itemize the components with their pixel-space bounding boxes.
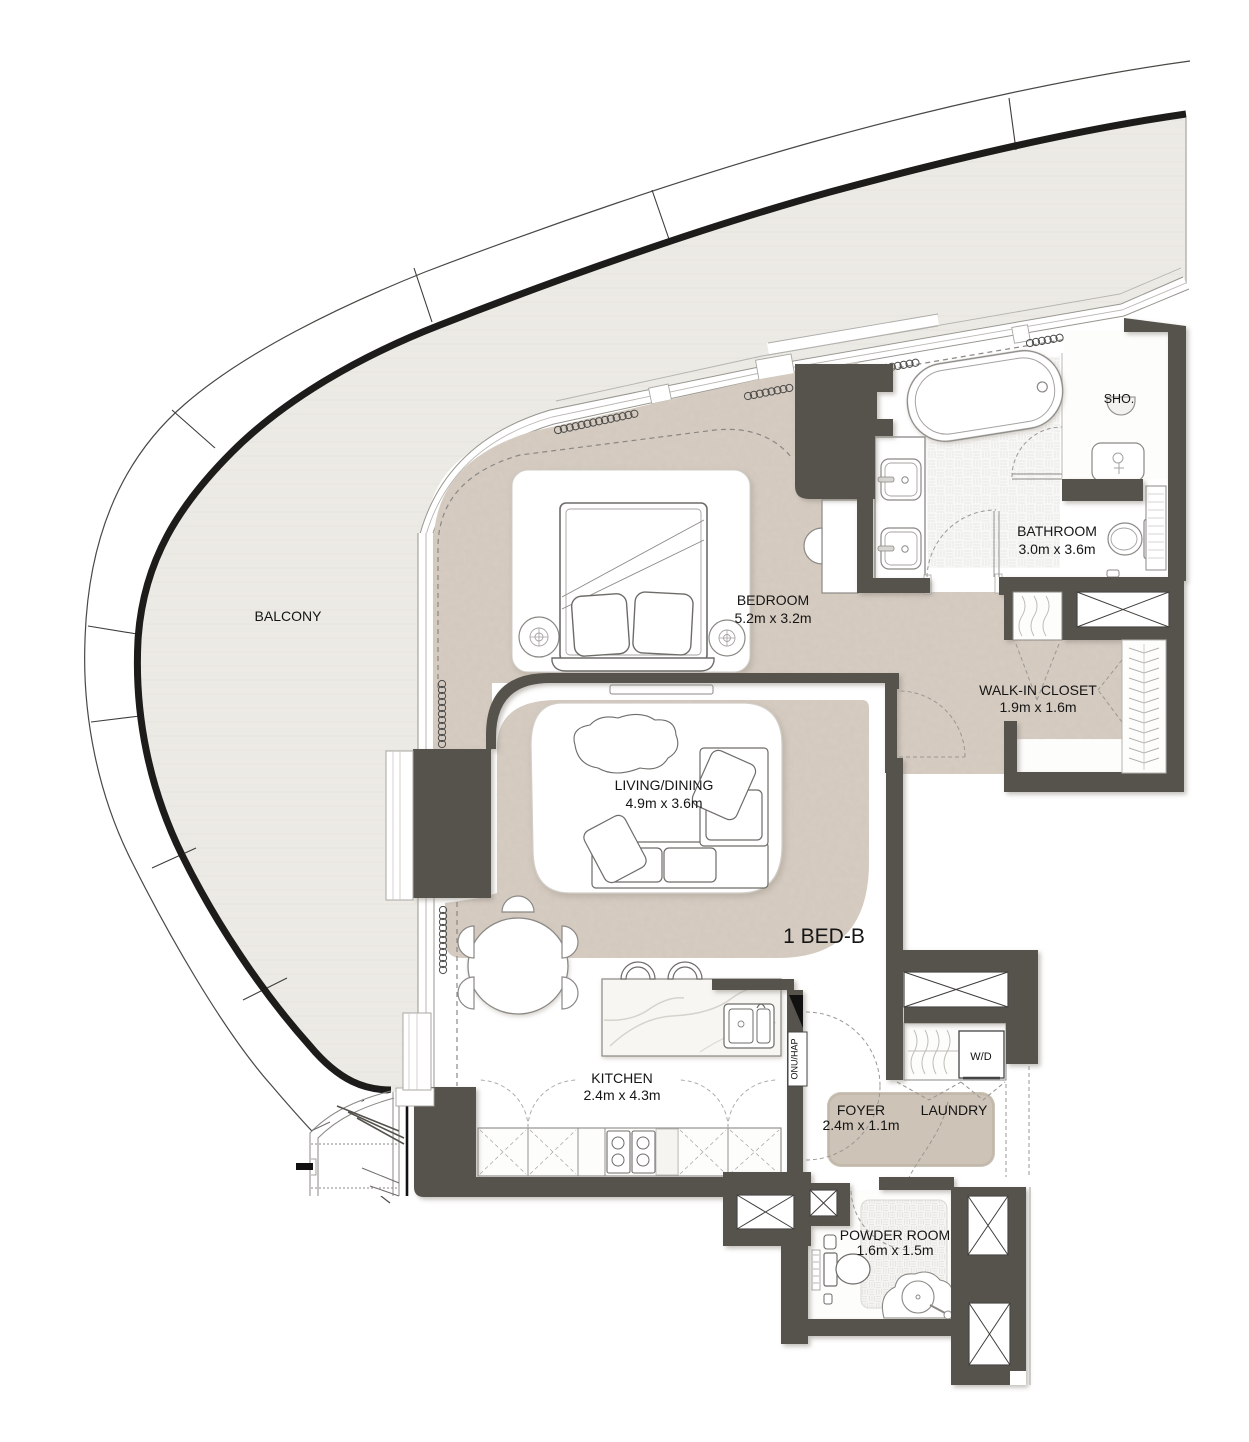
- svg-text:SHO.: SHO.: [1104, 392, 1135, 406]
- svg-text:2.4m x 4.3m: 2.4m x 4.3m: [583, 1087, 660, 1103]
- svg-text:5.2m x 3.2m: 5.2m x 3.2m: [734, 610, 811, 626]
- svg-text:1 BED-B: 1 BED-B: [783, 925, 865, 948]
- svg-text:BEDROOM: BEDROOM: [737, 592, 809, 608]
- svg-text:4.9m x 3.6m: 4.9m x 3.6m: [625, 795, 702, 811]
- svg-text:1.9m x 1.6m: 1.9m x 1.6m: [999, 699, 1076, 715]
- svg-text:2.4m x 1.1m: 2.4m x 1.1m: [822, 1117, 899, 1133]
- svg-text:ONU/HAP: ONU/HAP: [790, 1038, 800, 1079]
- svg-text:POWDER ROOM: POWDER ROOM: [840, 1227, 950, 1243]
- svg-text:KITCHEN: KITCHEN: [591, 1070, 652, 1086]
- svg-text:BALCONY: BALCONY: [255, 608, 323, 624]
- svg-text:BATHROOM: BATHROOM: [1017, 523, 1097, 539]
- svg-text:LIVING/DINING: LIVING/DINING: [615, 777, 714, 793]
- svg-text:1.6m x 1.5m: 1.6m x 1.5m: [856, 1242, 933, 1258]
- svg-text:FOYER: FOYER: [837, 1102, 885, 1118]
- svg-text:3.0m x 3.6m: 3.0m x 3.6m: [1018, 541, 1095, 557]
- svg-text:WALK-IN CLOSET: WALK-IN CLOSET: [979, 682, 1097, 698]
- svg-text:W/D: W/D: [970, 1051, 991, 1063]
- svg-text:LAUNDRY: LAUNDRY: [921, 1102, 988, 1118]
